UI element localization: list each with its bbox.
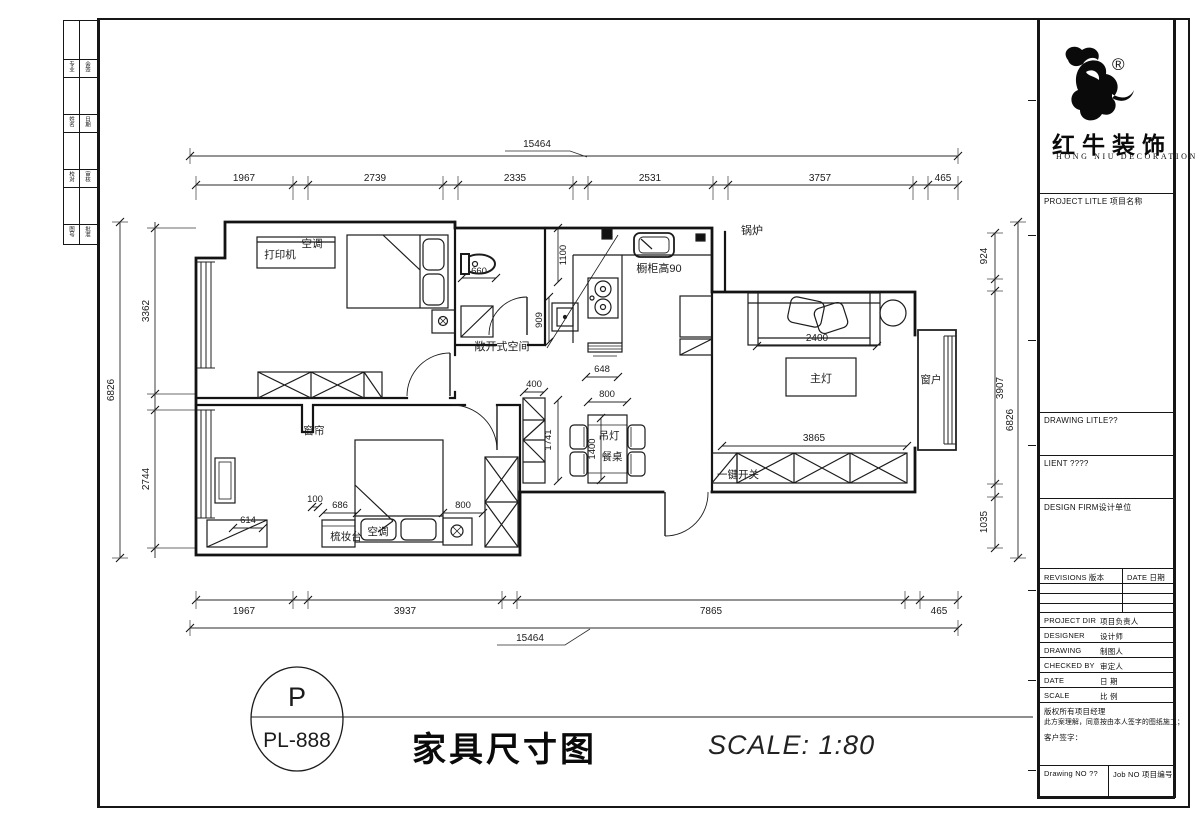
counter-foot [588,343,622,352]
label-ac: 空调 [302,237,323,250]
radiator [215,458,235,503]
dim-text: 2739 [364,173,387,184]
door-arc [489,297,527,335]
dim-text: 686 [332,500,348,511]
dim-text: 3937 [394,606,417,617]
dim-text: 7865 [700,606,723,617]
chair [628,425,645,449]
dim-text: 1400 [587,438,598,459]
knob [590,296,594,300]
bedroom2-window [197,410,215,518]
radiator-inner [219,462,231,499]
fridge [680,296,712,337]
chair [570,452,587,476]
tv-wardrobe-x [737,453,907,483]
label-boiler: 锅炉 [741,224,763,237]
floor-plan: 15464 1967 2739 2335 2531 3757 465 1967 … [0,0,1200,825]
walls [196,222,915,555]
dim-text: 465 [931,606,948,617]
dim-text: 6826 [106,378,117,401]
label-curtain: 窗帘 [304,424,325,437]
wardrobe-x [258,372,382,398]
burner-dot [601,287,606,292]
dim-text: 1967 [233,606,256,617]
dim-text: 800 [599,389,615,400]
dim-text: 15464 [523,139,551,150]
bed [347,235,448,308]
hood-vent [602,229,612,239]
label-one-switch: 一键开关 [717,468,759,481]
dim-text: 1035 [979,510,990,533]
dim-text: 400 [526,379,542,390]
label-open-space: 敞开式空间 [475,339,530,353]
bedroom1-window [197,262,215,368]
dim-text: 924 [979,247,990,264]
dim-text: 6826 [1005,408,1016,431]
label-main-light: 主灯 [810,372,832,385]
label-dresser: 梳妆台 [330,530,362,543]
pillow [423,274,444,305]
dim-text: 3362 [141,299,152,322]
window-lines [197,262,215,368]
label-window: 窗户 [921,373,942,386]
sink-inner [639,237,669,253]
stamp: P PL-888 [251,667,1033,771]
kitchen-unit-diag [680,339,712,355]
sofa-cushion [813,301,850,335]
toilet-tank [461,254,469,274]
dim-text: 3865 [803,433,826,444]
balcony-bay [918,330,956,450]
label-cabinet-height: 橱柜高90 [636,261,681,275]
door-arc [407,353,450,396]
wardrobe-x [485,457,518,547]
lamp-symbol-cross [440,318,446,324]
dimension-texts: 15464 1967 2739 2335 2531 3757 465 1967 … [106,139,1016,644]
pillow [401,519,436,540]
dim-text: 1100 [558,245,569,265]
stamp-code: PL-888 [263,729,331,752]
dim-text: 3907 [995,376,1006,399]
counter-foot-lines [588,346,622,356]
dim-text: 2335 [504,173,527,184]
dim-text: 660 [471,266,487,277]
label-pendant: 吊灯 [599,430,620,442]
balcony-window [918,330,956,450]
sofa-cushion [787,296,826,329]
cad-sheet: { "sheet": { "side_strip_rows": [["专业","… [0,0,1200,825]
faucet [641,239,652,249]
kitchen-fixtures [547,229,712,356]
dim-text: 909 [534,312,545,328]
bath-cabinet-diag [461,306,493,337]
dim-text: 15464 [516,633,544,644]
burner [595,299,611,315]
chair [628,452,645,476]
exterior-wall [196,222,915,555]
boiler-unit [696,234,705,241]
bedroom2-furniture [207,405,518,547]
label-ac2: 空调 [368,525,389,538]
stamp-letter: P [288,682,306,712]
dim-text: 800 [455,500,471,511]
burner [595,281,611,297]
dim-text: 2744 [141,467,152,490]
dim-text: 465 [935,173,952,184]
dim-text: 2531 [639,173,662,184]
window-lines [197,410,215,518]
dim-text: 3757 [809,173,832,184]
label-printer: 打印机 [264,248,296,261]
label-dining-table: 餐桌 [602,450,623,463]
window-lines [944,336,956,444]
side-table [880,300,906,326]
stove [588,278,618,318]
bed-lines [355,485,443,532]
dim-text: 1967 [233,173,256,184]
dining-furniture [523,398,645,483]
ac-floor-unit-blades [453,527,461,535]
living-furniture [665,293,907,536]
entry-door-arc [665,492,708,536]
dim-text: 100 [307,494,323,505]
dimension-ticks [116,152,1022,632]
chair [570,425,587,449]
bed-lines [383,235,420,308]
dim-text: 648 [594,364,610,375]
door-arc [452,405,497,450]
burner-dot [601,305,606,310]
pillow [423,239,444,270]
shoe-cabinet-lines [523,398,545,462]
